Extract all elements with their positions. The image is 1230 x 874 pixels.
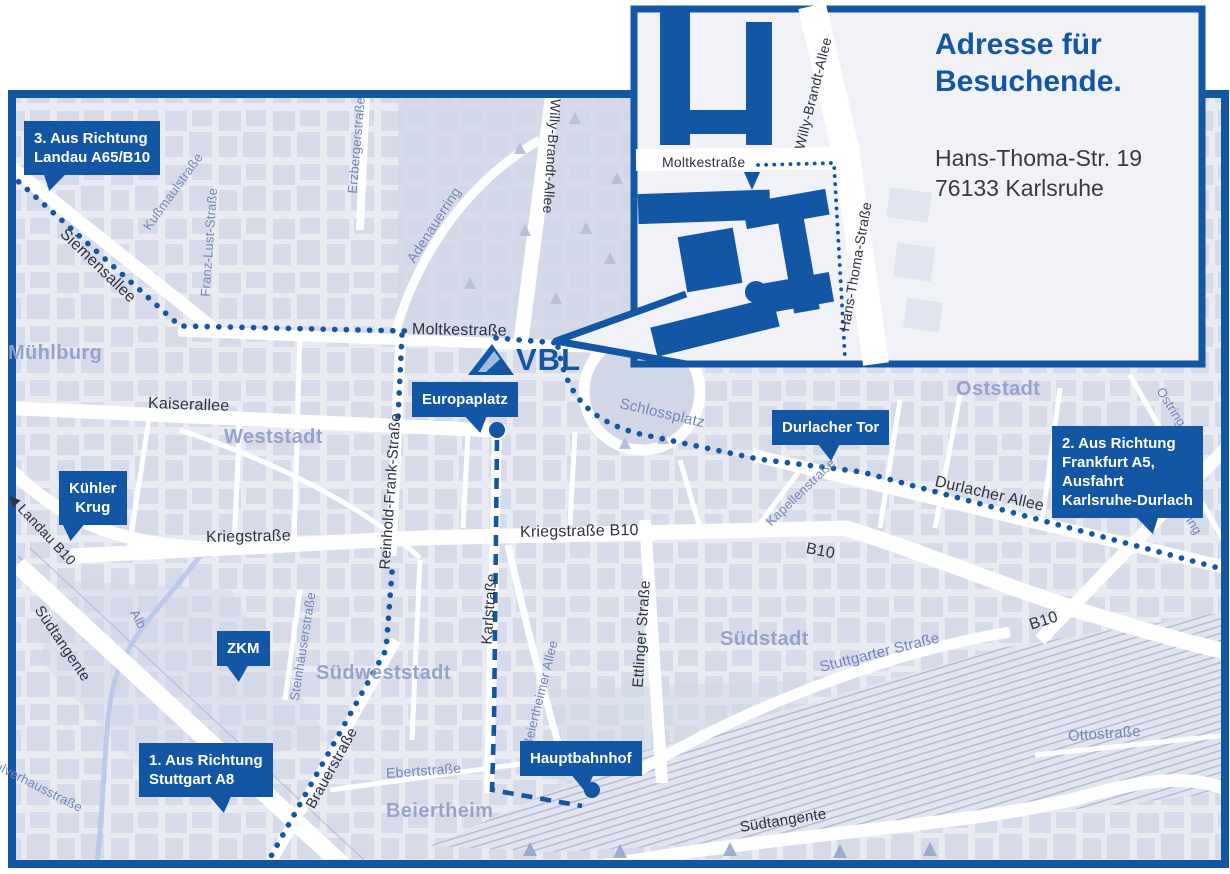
map-canvas <box>0 0 1230 874</box>
hauptbahnhof-stop-dot <box>584 782 600 798</box>
karlsruhe-directions-map: SiemensalleeMoltkestraßeKaiseralleeKrieg… <box>0 0 1230 874</box>
vbl-logo-text: VBL <box>516 342 581 378</box>
europaplatz-stop-dot <box>489 422 505 438</box>
inset-panel <box>556 6 1202 364</box>
